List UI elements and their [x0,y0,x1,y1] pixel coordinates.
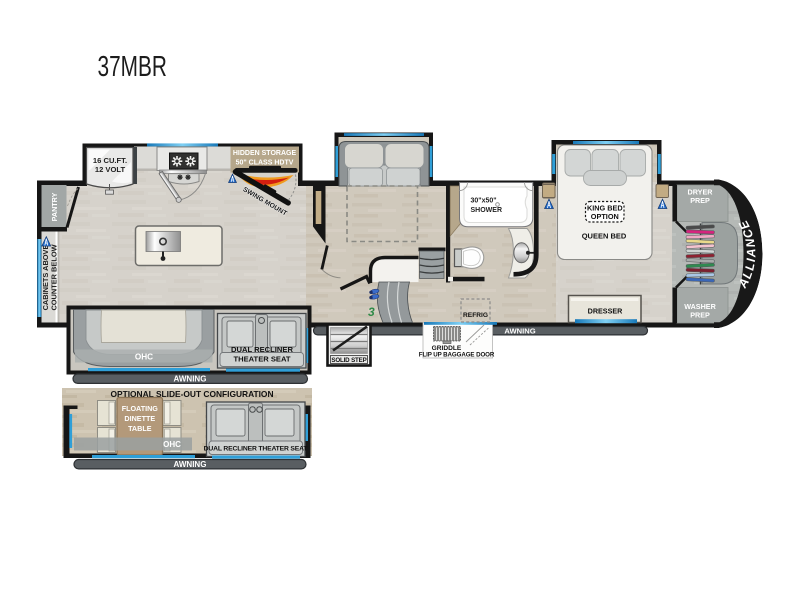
svg-text:THEATER SEAT: THEATER SEAT [233,355,290,364]
svg-text:TABLE: TABLE [128,424,152,433]
svg-text:16 CU.FT.: 16 CU.FT. [93,156,127,165]
svg-text:PREP: PREP [690,196,710,205]
svg-text:AWNING: AWNING [504,326,535,335]
svg-text:SHOWER: SHOWER [471,207,503,214]
svg-text:QUEEN BED: QUEEN BED [582,232,627,241]
svg-text:37MBR: 37MBR [98,51,167,83]
svg-text:DRESSER: DRESSER [588,307,624,316]
svg-text:DINETTE: DINETTE [124,414,155,423]
svg-text:DUAL RECLINER THEATER SEAT: DUAL RECLINER THEATER SEAT [204,445,309,452]
svg-text:SOLID STEP: SOLID STEP [331,357,366,364]
svg-text:12 VOLT: 12 VOLT [95,165,126,174]
svg-text:PREP: PREP [690,311,710,320]
svg-text:OHC: OHC [135,353,153,362]
svg-text:HIDDEN STORAGE: HIDDEN STORAGE [233,150,297,157]
svg-text:3: 3 [368,305,375,319]
svg-text:AWNING: AWNING [174,375,207,384]
svg-text:AWNING: AWNING [174,460,207,469]
svg-text:FLOATING: FLOATING [122,404,159,413]
svg-text:COUNTER BELOW: COUNTER BELOW [50,244,59,310]
svg-text:50" CLASS HDTV: 50" CLASS HDTV [236,160,294,167]
svg-text:FLIP UP BAGGAGE DOOR: FLIP UP BAGGAGE DOOR [419,352,495,359]
svg-text:OHC: OHC [163,440,181,449]
svg-text:REFRIG: REFRIG [463,312,488,319]
svg-text:30"x50": 30"x50" [471,197,497,204]
svg-text:OPTION: OPTION [591,212,619,221]
svg-text:PANTRY: PANTRY [50,192,59,221]
svg-text:DUAL RECLINER: DUAL RECLINER [231,345,293,354]
